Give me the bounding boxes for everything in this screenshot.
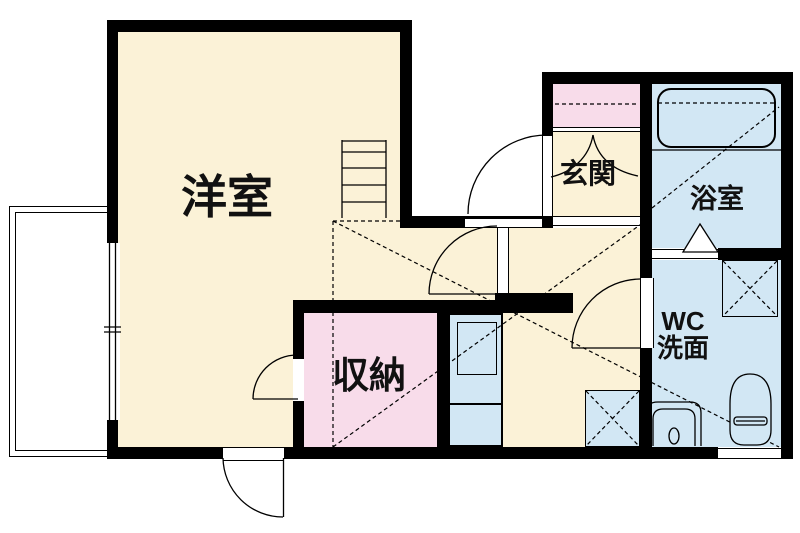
western-room-label: 洋室 (177, 174, 277, 220)
washing-machine-pan (585, 390, 640, 447)
wall (293, 400, 304, 459)
wall (107, 20, 412, 32)
wc-washroom-label: WC 洗面 (650, 308, 716, 361)
entrance-shelf-edge (553, 127, 640, 132)
front-door-swing-arc (468, 135, 547, 214)
entrance-label: 玄関 (548, 160, 628, 188)
appliance-pan (722, 260, 778, 317)
wall (640, 348, 652, 459)
kitchen-sink (457, 322, 497, 375)
wall (542, 72, 793, 84)
bathroom-floor (652, 84, 781, 248)
terrace-door-swing (223, 458, 284, 517)
wall (437, 300, 448, 459)
entrance-step (553, 216, 640, 226)
room-door-opening (497, 228, 509, 293)
wall (718, 248, 781, 260)
bathroom-door-threshold (652, 249, 718, 259)
wall (542, 72, 553, 135)
wall (293, 300, 304, 358)
balcony-window (105, 243, 120, 420)
bathroom-label: 浴室 (677, 186, 757, 213)
balcony-inner-line (15, 212, 112, 451)
wall (781, 72, 793, 459)
kitchen-counter-divider (448, 403, 503, 405)
wall (107, 20, 118, 243)
storage-label: 収納 (329, 357, 409, 394)
wall (495, 293, 573, 313)
storage-door-opening (293, 358, 304, 402)
wall (284, 447, 718, 459)
wall (293, 300, 495, 313)
wc-window (718, 448, 781, 459)
wall (400, 20, 412, 228)
wall (107, 447, 223, 459)
wall (640, 248, 652, 260)
terrace-door-opening (223, 447, 284, 461)
entrance-shelf-strip (553, 84, 640, 127)
floor-plan: 洋室 収納 玄関 浴室 WC 洗面 (0, 0, 800, 533)
corridor-window (465, 218, 542, 228)
